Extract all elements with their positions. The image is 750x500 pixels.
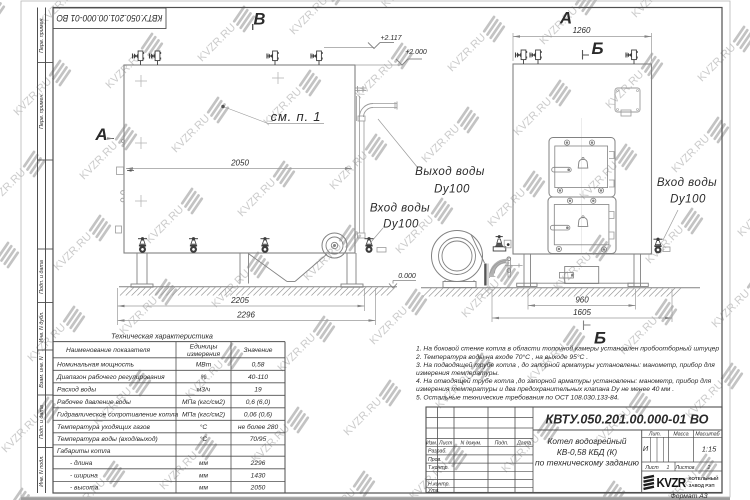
svg-text:KVZR.RU: KVZR.RU (630, 0, 673, 20)
svg-text:В: В (254, 11, 266, 29)
svg-text:KVZR.RU: KVZR.RU (736, 197, 750, 240)
svg-text:KVZR.RU: KVZR.RU (446, 32, 489, 75)
svg-text:40-110: 40-110 (248, 374, 268, 381)
svg-text:KVZR.RU: KVZR.RU (644, 224, 687, 267)
svg-text:Лист: Лист (644, 465, 659, 471)
svg-text:2. Температура воды на входе: 2. Температура воды на входе 70°С , на в… (415, 353, 588, 361)
svg-text:Н.контр.: Н.контр. (428, 482, 450, 488)
svg-text:KVZR.RU: KVZR.RU (342, 396, 385, 439)
svg-text:0,6 (6,0): 0,6 (6,0) (246, 399, 271, 406)
svg-text:Подп. и дата: Подп. и дата (39, 405, 45, 439)
svg-text:KVZR.RU: KVZR.RU (552, 251, 595, 294)
svg-text:4. На отводящей трубе котла ,: 4. На отводящей трубе котла ,до запорной… (416, 377, 712, 385)
svg-text:KVZR.RU: KVZR.RU (0, 167, 28, 210)
svg-text:KVZR.RU: KVZR.RU (420, 123, 463, 166)
svg-text:KVZR.RU: KVZR.RU (500, 433, 543, 476)
svg-text:- высота: - высота (70, 485, 99, 492)
svg-text:мм: мм (199, 472, 209, 479)
svg-text:Dy100: Dy100 (434, 184, 470, 196)
svg-text:N докум.: N докум. (461, 441, 482, 447)
svg-text:Расход воды: Расход воды (57, 385, 96, 393)
svg-text:КВТУ.050.201.00.000-01 ВО: КВТУ.050.201.00.000-01 ВО (56, 12, 162, 23)
svg-text:KVZR.RU: KVZR.RU (380, 0, 423, 10)
svg-text:KVZR.RU: KVZR.RU (512, 96, 555, 139)
svg-text:0.000: 0.000 (398, 273, 416, 280)
svg-text:Лист: Лист (438, 441, 453, 447)
svg-text:Dy100: Dy100 (383, 219, 419, 231)
svg-text:Дата: Дата (516, 441, 531, 447)
svg-text:Диапазон рабочего регулировани: Диапазон рабочего регулирования (56, 373, 165, 381)
svg-text:Т.контр.: Т.контр. (428, 465, 449, 471)
svg-text:2050: 2050 (230, 159, 249, 168)
svg-text:KVZR.RU: KVZR.RU (288, 0, 331, 37)
svg-text:Формат А3: Формат А3 (670, 493, 707, 500)
svg-text:Котел водогрейный: Котел водогрейный (548, 436, 627, 446)
svg-text:Подп.: Подп. (495, 441, 509, 447)
svg-text:Габариты котла: Габариты котла (57, 447, 111, 455)
svg-text:КВ-0,58 КБД (К): КВ-0,58 КБД (К) (557, 447, 618, 457)
svg-text:KVZR.RU: KVZR.RU (92, 386, 135, 429)
svg-text:Перв. примен.: Перв. примен. (39, 17, 45, 53)
svg-text:Техническая характеристика: Техническая характеристика (111, 332, 213, 341)
svg-text:3. На подводящей трубе котла: 3. На подводящей трубе котла , до запорн… (416, 361, 715, 369)
svg-text:измерения температуры.: измерения температуры. (416, 370, 499, 377)
svg-text:Выход воды: Выход воды (415, 166, 485, 178)
svg-text:Значение: Значение (244, 347, 273, 354)
svg-text:Инв. N подл.: Инв. N подл. (39, 455, 45, 487)
svg-text:Пров.: Пров. (428, 457, 442, 463)
svg-text:Вход воды: Вход воды (370, 203, 430, 215)
svg-text:Взам. инв. N: Взам. инв. N (39, 356, 45, 388)
svg-text:Разраб.: Разраб. (428, 449, 447, 455)
svg-text:мм: мм (199, 460, 209, 467)
svg-text:мм: мм (199, 485, 209, 492)
svg-text:KVZR.RU: KVZR.RU (486, 187, 529, 230)
svg-text:МПа (кгс/см2): МПа (кгс/см2) (182, 411, 225, 418)
svg-text:2050: 2050 (250, 485, 266, 492)
svg-text:А: А (94, 125, 107, 144)
svg-text:не более 280: не более 280 (238, 423, 279, 431)
svg-text:по техническому заданию: по техническому заданию (535, 458, 639, 468)
svg-text:измерения: измерения (187, 351, 220, 358)
svg-text:%: % (201, 374, 207, 381)
svg-text:Dy100: Dy100 (670, 194, 706, 206)
svg-text:KVZR.RU: KVZR.RU (276, 332, 319, 375)
svg-text:Наименование показателя: Наименование показателя (66, 347, 151, 354)
svg-text:19: 19 (254, 386, 262, 393)
svg-text:Масса: Масса (673, 432, 688, 438)
svg-text:МВт: МВт (196, 361, 212, 368)
svg-text:KVZR: KVZR (657, 476, 687, 490)
svg-text:KVZR.RU: KVZR.RU (144, 204, 187, 247)
svg-text:KVZR.RU: KVZR.RU (236, 177, 279, 220)
svg-text:0,06 (0,6): 0,06 (0,6) (244, 411, 272, 418)
svg-text:м3/ч: м3/ч (197, 386, 211, 393)
svg-text:KVZR.RU: KVZR.RU (78, 140, 121, 183)
svg-text:Масштаб: Масштаб (695, 432, 720, 438)
svg-text:1: 1 (667, 465, 670, 471)
svg-text:1605: 1605 (573, 308, 591, 317)
svg-text:- длина: - длина (70, 459, 93, 467)
svg-text:Инв. N дубл.: Инв. N дубл. (39, 311, 45, 342)
svg-text:1:15: 1:15 (702, 445, 717, 454)
svg-text:KVZR.RU: KVZR.RU (670, 133, 713, 176)
svg-text:Подп. и дата: Подп. и дата (39, 260, 45, 294)
svg-text:+2.117: +2.117 (380, 35, 402, 42)
svg-text:KVZR.RU: KVZR.RU (460, 278, 503, 321)
svg-text:°С: °С (200, 423, 208, 431)
svg-text:Температура воды (вход/выход): Температура воды (вход/выход) (57, 435, 158, 443)
svg-text:Перв. примен.: Перв. примен. (39, 93, 45, 129)
svg-text:2296: 2296 (250, 460, 266, 467)
svg-text:2205: 2205 (230, 296, 249, 305)
svg-text:Температура уходящих газов: Температура уходящих газов (57, 423, 150, 431)
svg-text:КВТУ.050.201.00.000-01 ВО: КВТУ.050.201.00.000-01 ВО (546, 412, 709, 427)
svg-text:0,58: 0,58 (252, 361, 265, 368)
svg-text:1430: 1430 (251, 472, 266, 479)
svg-text:2296: 2296 (236, 311, 255, 320)
svg-text:МПа (кгс/см2): МПа (кгс/см2) (182, 399, 225, 406)
svg-text:Изм.: Изм. (426, 441, 437, 447)
svg-text:1260: 1260 (573, 26, 591, 35)
svg-text:KVZR.RU: KVZR.RU (368, 305, 411, 348)
svg-text:1. На боковой стенке котла в: 1. На боковой стенке котла в области топ… (416, 345, 719, 353)
svg-text:Рабочее давление воды: Рабочее давление воды (57, 398, 131, 406)
svg-text:Вход воды: Вход воды (657, 177, 717, 189)
svg-text:ЗАВОД РЭП: ЗАВОД РЭП (689, 483, 715, 489)
svg-text:KVZR.RU: KVZR.RU (196, 22, 239, 65)
svg-text:Б: Б (591, 39, 603, 58)
svg-text:Гидравлическое сопротивление к: Гидравлическое сопротивление котла (57, 410, 178, 418)
svg-text:KVZR.RU: KVZR.RU (52, 231, 95, 274)
svg-text:- ширина: - ширина (70, 472, 98, 479)
svg-text:А: А (559, 9, 572, 28)
svg-text:Единицы: Единицы (190, 343, 218, 351)
svg-text:KVZR.RU: KVZR.RU (696, 42, 739, 85)
svg-text:2: 2 (707, 465, 711, 471)
svg-text:Утв.: Утв. (428, 488, 440, 494)
svg-text:И: И (643, 444, 649, 453)
svg-text:+2.000: +2.000 (405, 49, 427, 56)
svg-text:KVZR.RU: KVZR.RU (12, 76, 55, 119)
svg-text:см. п. 1: см. п. 1 (271, 109, 322, 124)
svg-text:5. Остальные технические треб: 5. Остальные технические требования по О… (416, 393, 619, 401)
svg-text:Листов: Листов (675, 465, 695, 471)
svg-text:KVZR.RU: KVZR.RU (170, 113, 213, 156)
svg-text:KVZR.RU: KVZR.RU (0, 258, 2, 301)
svg-text:960: 960 (575, 296, 589, 305)
svg-text:Лит.: Лит. (648, 432, 661, 438)
svg-text:Номинальная мощность: Номинальная мощность (57, 361, 135, 368)
svg-text:измерения температуры и два пр: измерения температуры и два предохраните… (416, 385, 674, 393)
svg-text:70/95: 70/95 (250, 436, 267, 443)
svg-text:°С: °С (200, 435, 208, 443)
